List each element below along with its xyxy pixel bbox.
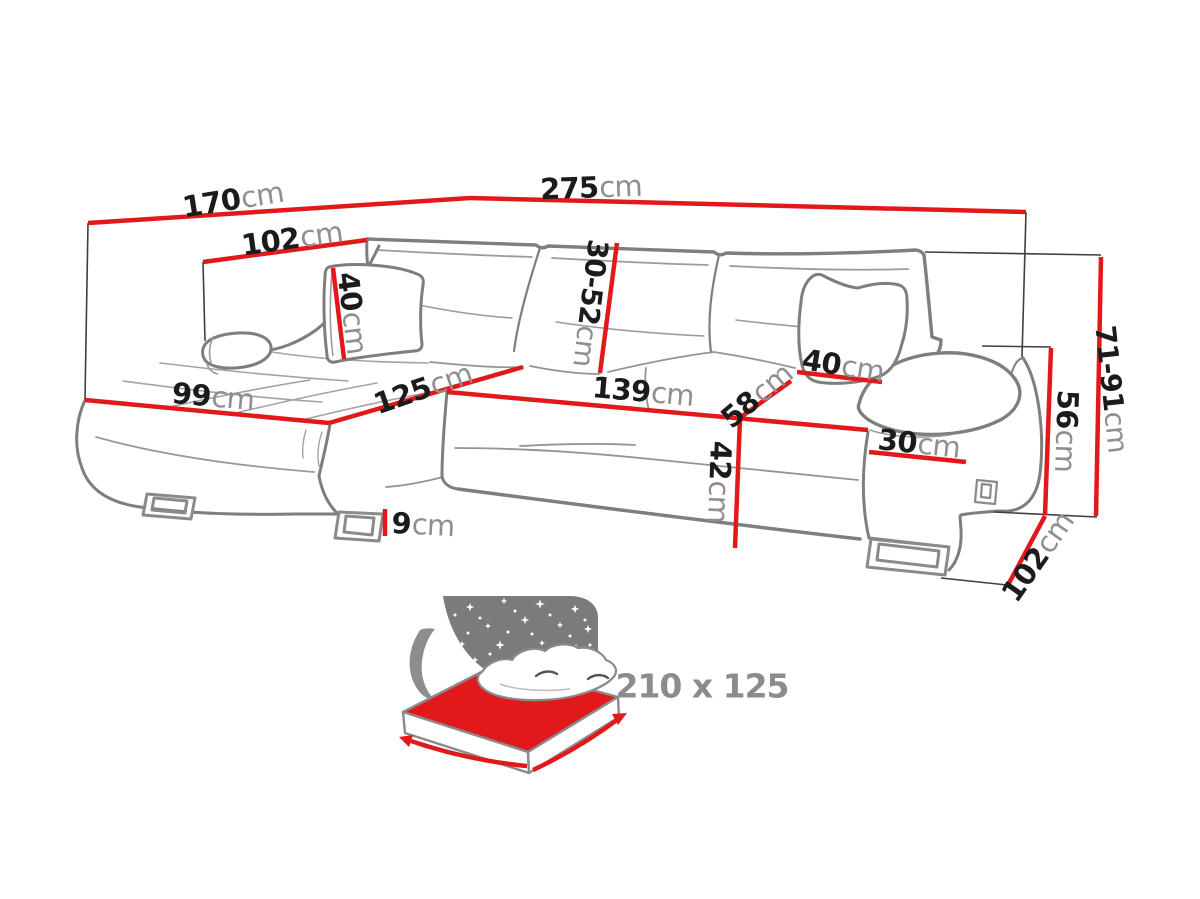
dim-label-left-cushion: 40cm (333, 270, 372, 355)
dim-value: 40 (331, 270, 369, 313)
dim-value: 30 (876, 422, 918, 460)
dim-unit: cm (335, 309, 374, 355)
dim-label-leg-height: 9cm (391, 509, 455, 541)
dim-label-armrest-width: 30cm (877, 425, 962, 462)
dim-unit: cm (701, 480, 736, 524)
dim-unit: cm (566, 324, 604, 369)
dim-unit: cm (650, 375, 695, 413)
dim-unit: cm (1097, 410, 1134, 454)
dim-value: 40 (800, 342, 844, 382)
dim-unit: cm (238, 175, 285, 215)
dim-value: 42 (703, 440, 738, 480)
dim-unit: cm (916, 426, 962, 464)
dim-value: 275 (540, 170, 599, 206)
dim-value: 56 (1050, 389, 1085, 429)
sofa-line-drawing (0, 0, 1200, 899)
sofa-dimensions-diagram: 170cm 102cm 275cm 40cm 30-52cm 99cm 125c… (0, 0, 1200, 899)
moon-crescent (410, 628, 436, 701)
sofa-legs (143, 480, 997, 575)
dim-unit: cm (1048, 429, 1083, 473)
dim-value: 9 (391, 506, 412, 541)
dim-unit: cm (210, 379, 255, 417)
dim-label-chaise-front-width: 99cm (171, 379, 256, 415)
dim-unit: cm (839, 348, 886, 388)
dim-unit: cm (599, 169, 643, 204)
dim-unit: cm (298, 215, 345, 255)
dim-label-total-width: 275cm (540, 172, 643, 205)
dim-unit: cm (411, 507, 455, 543)
dim-label-armrest-height: 56cm (1050, 389, 1082, 472)
dim-value: 99 (171, 376, 213, 413)
dim-value: 139 (591, 370, 652, 409)
sleeping-function-icon (399, 596, 627, 773)
dim-label-seat-width: 139cm (591, 373, 695, 411)
dim-label-seat-height: 42cm (703, 440, 735, 523)
sleeping-area-size: 210 x 125 (615, 670, 788, 703)
